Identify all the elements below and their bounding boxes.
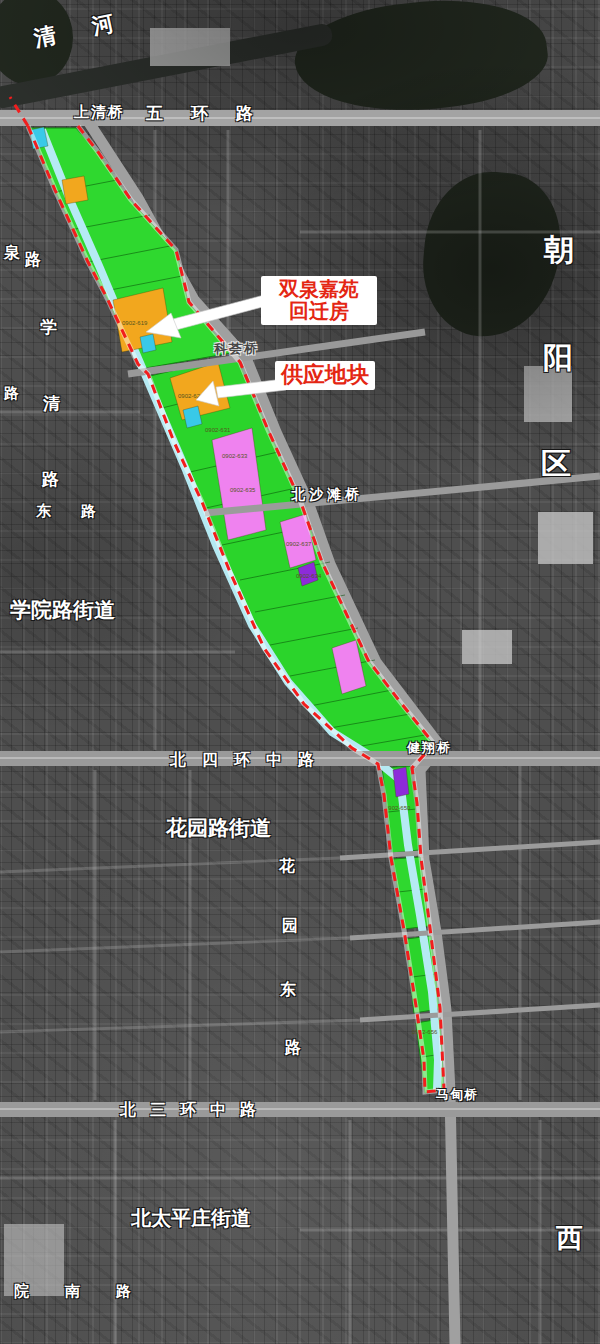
road-label-lu-partial: 路 [4,384,19,403]
parcel-code: 0902-635 [230,487,256,493]
road-label-yuannan: 院南路 [14,1282,167,1301]
road-label-huayuandong-3: 东 [280,980,296,1001]
callout-resettlement-line2: 回迁房 [267,300,371,322]
district-label-chaoyang-2: 阳 [543,338,573,379]
parcel-orange-small [62,176,88,204]
road-label-quan-lu: 路 [25,250,41,271]
bridge-label-madian: 马甸桥 [436,1086,478,1104]
cross-street [340,842,600,858]
road-label-xueqing-2: 清 [43,392,60,415]
parcel-code: 0902-656 [412,1029,438,1035]
road-label-huayuandong-4: 路 [285,1038,301,1059]
bridge-label-jianxiang: 健翔桥 [407,739,452,757]
parcel-code: 0902-634 [296,573,322,579]
cross-roads [0,332,600,1117]
parcel-cyan [140,334,156,353]
road-label-xueqing-1: 学 [40,316,57,339]
road-label-beisihuan: 北四环中路 [170,750,330,771]
satellite-planning-map: 0902-619 0902-626 0902-631 0902-633 0902… [0,0,600,1344]
district-label-xicheng-partial: 西 [556,1220,583,1256]
parcel-code: 0902-650 [385,805,411,811]
road-label-huayuandong-2: 园 [282,916,298,937]
callout-supply: 供应地块 [275,361,375,390]
subdistrict-label-xueyuanlu: 学院路街道 [10,596,115,624]
parcel-code: 0902-633 [222,453,248,459]
cross-street [360,1005,600,1020]
road-label-xueqing-3: 路 [42,468,59,491]
parcel-code: 0902-637 [286,541,312,547]
bridge-label-beishatan: 北沙滩桥 [291,486,363,504]
bridge-label-kehui: 科荟桥 [214,340,259,358]
callout-resettlement: 双泉嘉苑 回迁房 [261,276,377,325]
plan-overlay: 0902-619 0902-626 0902-631 0902-633 0902… [0,0,600,1344]
callout-supply-text: 供应地块 [281,363,369,388]
parcel-code: 0902-619 [122,320,148,326]
parcel-purple [393,767,409,797]
road-label-beisanhuan: 北三环中路 [120,1100,270,1121]
cross-street [350,922,600,938]
parcel-code: 0902-631 [205,427,231,433]
road-label-donglu: 东路 [36,502,126,521]
road-label-huayuandong-1: 花 [279,856,295,877]
road-label-quan: 泉 [4,243,20,264]
subdistrict-label-beitaipingzhuang: 北太平庄街道 [131,1205,251,1232]
district-label-chaoyang-1: 朝 [544,230,574,271]
district-label-chaoyang-3: 区 [541,444,571,485]
subdistrict-label-huayuanlu: 花园路街道 [166,814,271,842]
road-label-wuhuan: 五环路 [146,102,281,125]
callout-resettlement-line1: 双泉嘉苑 [267,278,371,300]
bridge-label-shangqing: 上清桥 [74,103,125,122]
